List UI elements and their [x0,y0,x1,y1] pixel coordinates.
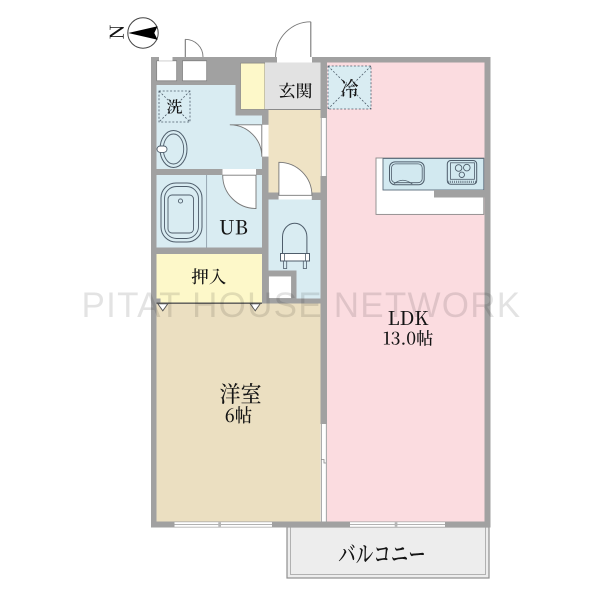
svg-text:PITAT HOUSE NETWORK: PITAT HOUSE NETWORK [82,286,522,325]
